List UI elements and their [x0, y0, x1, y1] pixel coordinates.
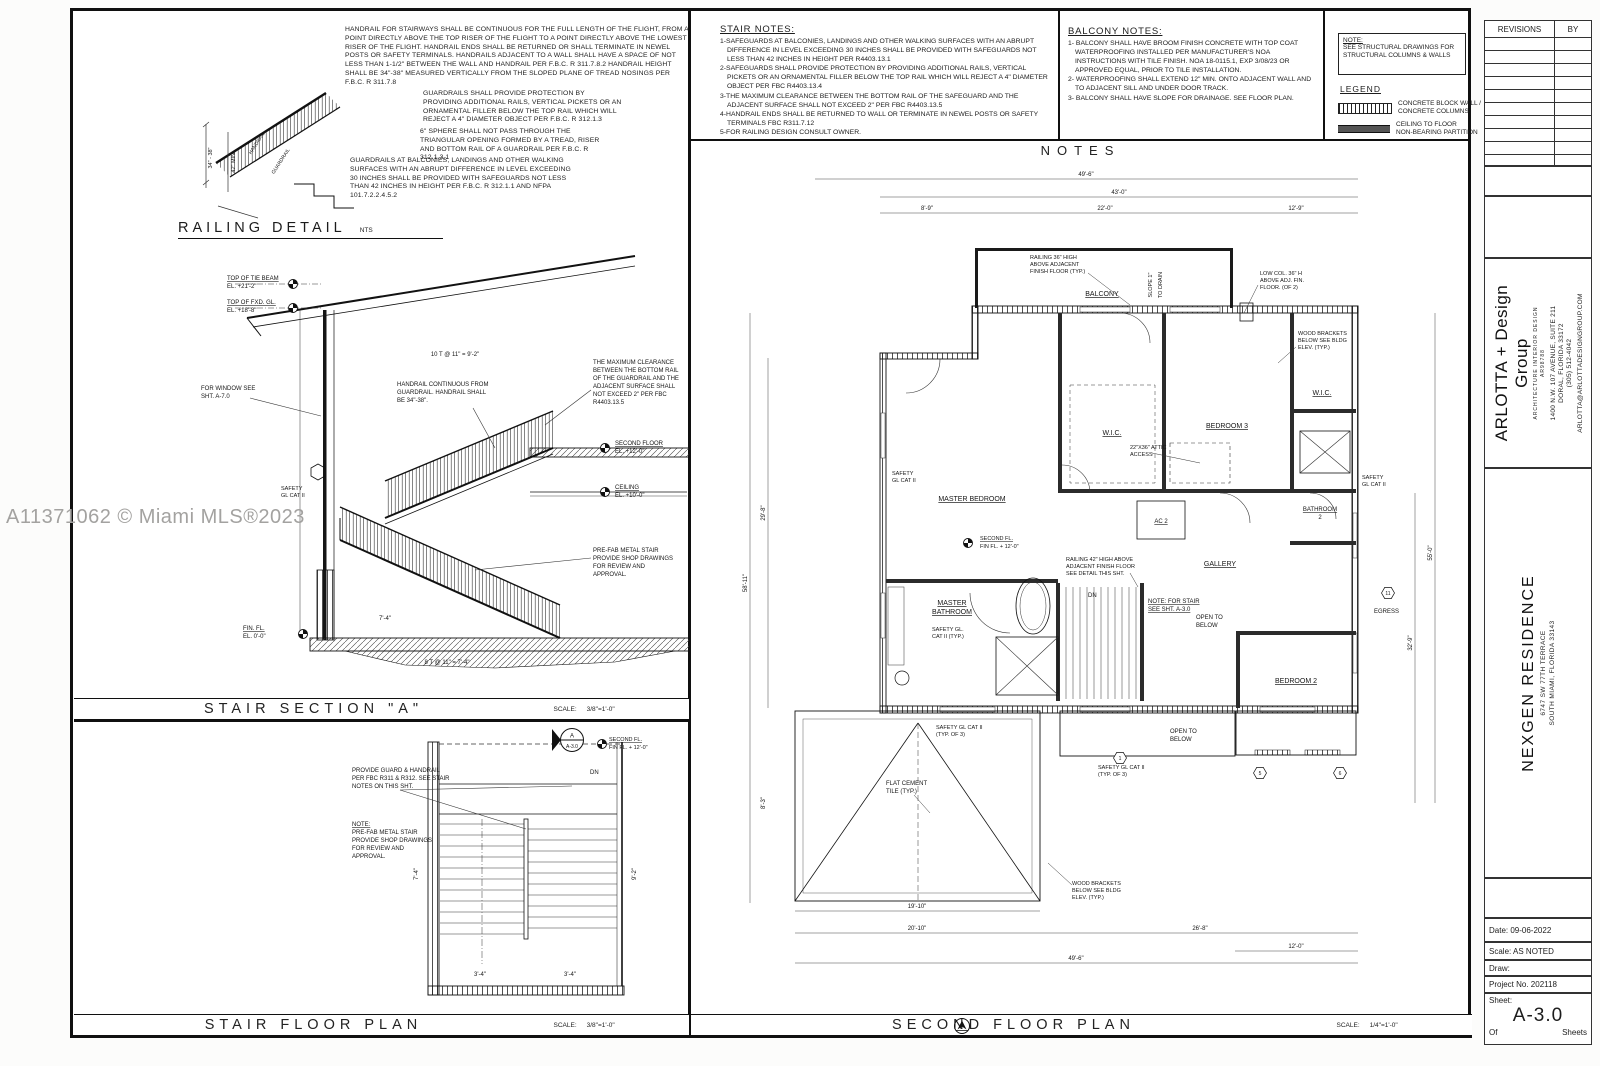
dim-right-2: 32'-9": [1408, 635, 1414, 650]
safety-typ-2: CAT II (TYP.): [932, 634, 964, 640]
railing-detail-title: RAILING DETAIL NTS: [178, 220, 443, 239]
plan-prefab-note: NOTE:: [352, 822, 371, 828]
dim-bot-4: 49'-6": [1068, 956, 1083, 962]
project-info: NEXGEN RESIDENCE 6747 SW 77TH TERRACE SO…: [1484, 468, 1592, 878]
dim-top-4: 22'-0": [1097, 206, 1112, 212]
handrail-note-1: HANDRAIL FOR STAIRWAYS SHALL BE CONTINUO…: [345, 26, 690, 88]
stair-plan-fin-fl: FIN FL. + 12'-0": [609, 745, 648, 751]
safety-typ3-b2: (TYP. OF 3): [1098, 772, 1127, 778]
firm-phone: (305) 512-4042: [1566, 339, 1573, 388]
safety-left: SAFETY: [892, 471, 914, 477]
block-wall-label-1: CONCRETE BLOCK WALL /: [1398, 100, 1481, 108]
room-gallery: GALLERY: [1204, 561, 1236, 568]
titleblock-spacer-3: [1484, 878, 1592, 918]
sheet-number: A-3.0: [1489, 1005, 1587, 1027]
wood-brackets-note-b2: BELOW SEE BLDG: [1072, 888, 1121, 894]
wood-brackets-note-b: WOOD BRACKETS: [1072, 881, 1121, 887]
railing-detail-scale: NTS: [360, 227, 373, 234]
guard-note-3: NOTES ON THIS SHT.: [352, 784, 414, 790]
draw-row: Draw:: [1484, 960, 1592, 976]
revisions-header: REVISIONS BY: [1485, 21, 1591, 38]
stair-section-scale: SCALE: 3/8"=1'-0": [554, 706, 689, 713]
room-bedroom3: BEDROOM 3: [1206, 423, 1248, 430]
stair-plan-dim-4: 9'-2": [632, 868, 638, 880]
second-floor-scale: SCALE: 1/4"=1'-0": [1337, 1022, 1472, 1029]
revision-row: [1485, 129, 1591, 142]
stair-section-title: STAIR SECTION "A": [74, 701, 554, 717]
dim-top-3: 8'-9": [921, 206, 933, 212]
firm-email: ARLOTTA@ARLOTTADESIGNGROUP.COM: [1577, 293, 1584, 432]
stair-notes-block: STAIR NOTES: 1-SAFEGUARDS AT BALCONIES, …: [720, 24, 1055, 137]
stair-note-item: 3-THE MAXIMUM CLEARANCE BETWEEN THE BOTT…: [720, 92, 1055, 110]
section-geometry: [235, 256, 689, 668]
open-to-below-2: BELOW: [1196, 623, 1218, 629]
handrail-cont-note-2: GUARDRAIL. HANDRAIL SHALL: [397, 390, 487, 396]
clearance-note: THE MAXIMUM CLEARANCE: [593, 360, 674, 366]
handrail-cont-note-3: BE 34"-38".: [397, 398, 428, 404]
fxd-gl-el: EL. +18'-8": [227, 308, 256, 314]
partition-swatch: [1338, 125, 1390, 133]
revision-row: [1485, 51, 1591, 64]
block-wall-swatch: [1338, 103, 1392, 114]
revisions-header-label: REVISIONS: [1485, 21, 1555, 37]
balcony-notes-title: BALCONY NOTES:: [1068, 26, 1314, 37]
flat-tile-note: FLAT CEMENT: [886, 781, 927, 787]
clearance-note-3: OF THE GUARDRAIL AND THE: [593, 376, 679, 382]
handrail-note-2: GUARDRAILS SHALL PROVIDE PROTECTION BY P…: [423, 90, 623, 125]
slope-note-2: TO DRAIN: [1158, 272, 1164, 298]
room-bathroom2-2: 2: [1318, 515, 1322, 521]
section-marker-sheet: A-3.0: [566, 744, 578, 750]
revision-row: [1485, 90, 1591, 103]
firm-name: ARLOTTA + Design Group: [1492, 258, 1532, 468]
project-name: NEXGEN RESIDENCE: [1520, 574, 1538, 771]
room-bathroom2: BATHROOM: [1303, 507, 1337, 513]
project-address-2: SOUTH MIAMI, FLORIDA 33143: [1549, 620, 1556, 725]
open-to-below: OPEN TO: [1196, 615, 1223, 621]
balcony-note-item: 3- BALCONY SHALL HAVE SLOPE FOR DRAINAGE…: [1068, 94, 1314, 103]
safety-right: SAFETY: [1362, 475, 1384, 481]
open-to-below-b2: BELOW: [1170, 737, 1192, 743]
room-master-bath: MASTER: [937, 600, 966, 607]
railing36-note-3: FINISH FLOOR (TYP.): [1030, 269, 1085, 275]
stair-plan-title: STAIR FLOOR PLAN: [74, 1017, 554, 1033]
firm-info: ARLOTTA + Design Group ARCHITECTURE INTE…: [1484, 258, 1592, 468]
slope-note: SLOPE 1": [1148, 273, 1154, 298]
prefab-note-2: PROVIDE SHOP DRAWINGS: [593, 556, 673, 562]
marker-11: 11: [1385, 591, 1390, 597]
stair-plan-scale: SCALE: 3/8"=1'-0": [554, 1022, 689, 1029]
firm-address-1: 1400 N.W. 107 AVENUE, SUITE 211: [1550, 306, 1557, 421]
room-bedroom2: BEDROOM 2: [1275, 678, 1317, 685]
handrail-cont-note: HANDRAIL CONTINUOUS FROM: [397, 382, 488, 388]
stair-note-item: 1-SAFEGUARDS AT BALCONIES, LANDINGS AND …: [720, 37, 1055, 64]
dim-right-1: 55'-0": [1428, 545, 1434, 560]
dim-bot-5: 12'-0": [1288, 944, 1303, 950]
guard-note: PROVIDE GUARD & HANDRAIL: [352, 768, 441, 774]
structural-note-title: NOTE:: [1343, 37, 1461, 44]
dim-bot-2: 20'-10": [908, 926, 927, 932]
railing-dim-height: 34" - 38": [208, 147, 214, 168]
room-master-bedroom: MASTER BEDROOM: [938, 496, 1005, 503]
railing36-note: RAILING 36" HIGH: [1030, 255, 1077, 261]
stair-notes-title: STAIR NOTES:: [720, 24, 1055, 35]
notes-row-divider: [690, 139, 1471, 141]
ceiling-el: EL. +10'-0": [615, 493, 644, 499]
plan-prefab-note-5: APPROVAL.: [352, 854, 386, 860]
project-no-row: Project No. 202118: [1484, 976, 1592, 993]
second-floor-label: SECOND FLOOR: [615, 441, 664, 447]
dim-bot-1: 19'-10": [908, 904, 927, 910]
room-egress: EGRESS: [1374, 609, 1399, 615]
scale-label: SCALE:: [554, 1022, 577, 1029]
tie-beam-el: EL. +21'-2": [227, 284, 256, 290]
second-floor-plan-drawing: BALCONY MASTER BEDROOM SECOND FL. FIN FL…: [700, 163, 1475, 1011]
legend-item-partition: CEILING TO FLOOR NON-BEARING PARTITION: [1338, 121, 1478, 137]
block-wall-label-2: CONCRETE COLUMNS: [1398, 108, 1481, 116]
attic-access-label: 22"X36" ATTIC: [1130, 445, 1167, 451]
stair-plan-dim-2: 3'-4": [474, 972, 486, 978]
structural-note-box: NOTE: SEE STRUCTURAL DRAWINGS FOR STRUCT…: [1338, 33, 1466, 75]
legend-item-block-wall: CONCRETE BLOCK WALL / CONCRETE COLUMNS: [1338, 100, 1481, 116]
revision-row: [1485, 142, 1591, 155]
sheet-of: Of: [1489, 1028, 1497, 1037]
railing-detail-title-text: RAILING DETAIL: [178, 220, 346, 236]
safety-typ: SAFETY GL.: [932, 627, 964, 633]
scale-value: 1/4"=1'-0": [1370, 1022, 1398, 1029]
stair-balcony-divider: [1058, 8, 1060, 140]
safety-typ3: SAFETY GL CAT II: [936, 725, 983, 731]
attic-access-label-2: ACCESS: [1130, 452, 1153, 458]
stair-plan-dim-3: 3'-4": [564, 972, 576, 978]
section-marker-letter: A: [570, 734, 574, 740]
plan-prefab-note-4: FOR REVIEW AND: [352, 846, 405, 852]
north-arrow-icon: [953, 1017, 971, 1035]
railing42-note: RAILING 42" HIGH ABOVE: [1066, 557, 1133, 563]
partition-label: CEILING TO FLOOR NON-BEARING PARTITION: [1396, 121, 1478, 137]
stair-ref-note-2: SEE SHT. A-3.0: [1148, 607, 1191, 613]
prefab-note-3: FOR REVIEW AND: [593, 564, 646, 570]
clearance-note-4: ADJACENT SURFACE SHALL: [593, 384, 676, 390]
revision-row: [1485, 116, 1591, 129]
architectural-sheet: { "watermark": "A11371062 © Miami MLS®20…: [0, 0, 1600, 1066]
fxd-gl-label: TOP OF FXD. GL.: [227, 300, 276, 306]
sheet-box: Sheet: A-3.0 Of Sheets: [1484, 993, 1592, 1045]
lowcol-note: LOW COL. 36" H: [1260, 271, 1302, 277]
block-wall-label: CONCRETE BLOCK WALL / CONCRETE COLUMNS: [1398, 100, 1481, 116]
plan-prefab-note-2: PRE-FAB METAL STAIR: [352, 830, 418, 836]
safety-right-2: GL CAT II: [1362, 482, 1386, 488]
second-floor-el: EL. +12'-0": [615, 449, 644, 455]
structural-note-body: SEE STRUCTURAL DRAWINGS FOR STRUCTURAL C…: [1343, 44, 1461, 61]
scale-value: 3/8"=1'-0": [587, 706, 615, 713]
railing-dim-min: 42" MIN.: [231, 151, 237, 173]
safety-typ3-b: SAFETY GL CAT II: [1098, 765, 1145, 771]
project-address-1: 6747 SW 77TH TERRACE: [1540, 630, 1547, 715]
firm-tagline: ARCHITECTURE INTERIOR DESIGN: [1533, 307, 1539, 420]
legend-title: LEGEND: [1340, 84, 1381, 94]
dim-top-1: 49'-6": [1078, 172, 1093, 178]
notes-heading: NOTES: [690, 143, 1471, 158]
stair-note-item: 5-FOR RAILING DESIGN CONSULT OWNER.: [720, 128, 1055, 137]
revision-row: [1485, 77, 1591, 90]
open-to-below-b: OPEN TO: [1170, 729, 1197, 735]
guardrail-label: GUARDRAIL: [271, 147, 292, 175]
fin-fl-label: FIN. FL.: [243, 626, 265, 632]
lowcol-note-2: ABOVE ADJ. FIN.: [1260, 278, 1304, 284]
fin-fl-el: EL. 0'-0": [243, 634, 266, 640]
tie-beam-label: TOP OF TIE BEAM: [227, 276, 279, 282]
window-note: FOR WINDOW SEE: [201, 386, 255, 392]
marker-5: 5: [1259, 771, 1262, 777]
plan-second-fl: SECOND FL.: [980, 536, 1013, 542]
railing42-note-2: ADJACENT FINISH FLOOR: [1066, 564, 1135, 570]
scale-label: SCALE:: [554, 706, 577, 713]
balcony-legend-divider: [1323, 8, 1325, 140]
prefab-note-4: APPROVAL.: [593, 572, 627, 578]
railing36-note-2: ABOVE ADJACENT: [1030, 262, 1080, 268]
elev-fin-fl: FIN. FL. EL. 0'-0": [243, 626, 308, 640]
dim-top-2: 43'-0": [1111, 190, 1126, 196]
railing42-note-3: SEE DETAIL THIS SHT.: [1066, 571, 1125, 577]
by-header-label: BY: [1555, 25, 1591, 34]
elev-tie-beam: TOP OF TIE BEAM EL. +21'-2": [227, 276, 298, 290]
date-row: Date: 09-06-2022: [1484, 918, 1592, 942]
stair-plan-titlebar: STAIR FLOOR PLAN SCALE: 3/8"=1'-0": [74, 1014, 689, 1038]
section-cut-marker: A A-3.0: [552, 729, 584, 752]
mls-watermark: A11371062 © Miami MLS®2023: [6, 506, 305, 529]
section-dim-bottom: 8 T @ 11" = 7'-4": [424, 660, 469, 666]
room-ac2: AC 2: [1154, 519, 1168, 525]
sheet-sheets: Sheets: [1562, 1028, 1587, 1037]
sheet-label: Sheet:: [1489, 996, 1587, 1005]
titleblock-spacer-1: [1484, 166, 1592, 196]
railing-geometry: [203, 93, 354, 218]
plan-dn: DN: [1088, 593, 1097, 599]
room-balcony: BALCONY: [1085, 291, 1119, 298]
section-dim-run: 7'-4": [379, 616, 391, 622]
dim-left-3: 8'-3": [761, 797, 767, 809]
balcony-note-item: 2- WATERPROOFING SHALL EXTEND 12" MIN. O…: [1068, 75, 1314, 93]
section-dim-top: 10 T @ 11" = 9'-2": [431, 352, 479, 358]
prefab-note: PRE-FAB METAL STAIR: [593, 548, 659, 554]
marker-1: 1: [1119, 756, 1122, 762]
dim-bot-3: 26'-8": [1192, 926, 1207, 932]
wood-brackets-note-b3: ELEV. (TYP.): [1072, 895, 1104, 901]
scale-row: Scale: AS NOTED: [1484, 942, 1592, 960]
window-note-2: SHT. A-7.0: [201, 394, 230, 400]
handrail-note-4: GUARDRAILS AT BALCONIES, LANDINGS AND OT…: [350, 157, 580, 201]
ceiling-label: CEILING: [615, 485, 639, 491]
stair-floor-plan-drawing: A A-3.0 SECOND FL. FIN FL. + 12'-0" DN P…: [340, 724, 690, 1012]
partition-label-1: CEILING TO FLOOR: [1396, 121, 1478, 129]
stair-section-titlebar: STAIR SECTION "A" SCALE: 3/8"=1'-0": [74, 698, 689, 722]
balcony-notes-block: BALCONY NOTES: 1- BALCONY SHALL HAVE BRO…: [1068, 26, 1314, 103]
stair-plan-dim-1: 7'-4": [414, 868, 420, 880]
plan-prefab-note-3: PROVIDE SHOP DRAWINGS: [352, 838, 432, 844]
safety-typ3-2: (TYP. OF 3): [936, 732, 965, 738]
safety-left-2: GL CAT II: [892, 478, 916, 484]
stair-note-item: 2-SAFEGUARDS SHALL PROVIDE PROTECTION BY…: [720, 64, 1055, 91]
second-floor-titlebar: SECOND FLOOR PLAN SCALE: 1/4"=1'-0": [691, 1014, 1472, 1038]
stair-plan-dn: DN: [590, 770, 599, 776]
flat-tile-note-2: TILE (TYP.): [886, 789, 917, 795]
clearance-note-5: NOT EXCEED 2" PER FBC: [593, 392, 667, 398]
dim-top-5: 12'-9": [1288, 206, 1303, 212]
room-master-bath-2: BATHROOM: [932, 609, 972, 616]
guard-note-2: PER FBC R311 & R312. SEE STAIR: [352, 776, 450, 782]
scale-value: 3/8"=1'-0": [587, 1022, 615, 1029]
revisions-table: REVISIONS BY: [1484, 20, 1592, 166]
stair-plan-second-fl: SECOND FL.: [609, 737, 642, 743]
revision-row: [1485, 103, 1591, 116]
safety-glass-label: SAFETY: [281, 486, 303, 492]
wood-brackets-note: WOOD BRACKETS: [1298, 331, 1347, 337]
balcony-note-item: 1- BALCONY SHALL HAVE BROOM FINISH CONCR…: [1068, 39, 1314, 75]
room-wic-1: W.I.C.: [1102, 430, 1121, 437]
second-floor-title: SECOND FLOOR PLAN: [691, 1017, 1337, 1033]
partition-label-2: NON-BEARING PARTITION: [1396, 129, 1478, 137]
clearance-note-2: BETWEEN THE BOTTOM RAIL: [593, 368, 679, 374]
dim-left-1: 58'-11": [743, 574, 749, 592]
stair-note-item: 4-HANDRAIL ENDS SHALL BE RETURNED TO WAL…: [720, 110, 1055, 128]
railing-detail-drawing: 34" - 38" 42" MIN. HANDRAIL GUARDRAIL: [198, 66, 368, 224]
sheet-of-row: Of Sheets: [1489, 1028, 1587, 1037]
titleblock-spacer-2: [1484, 196, 1592, 258]
scale-label: SCALE:: [1337, 1022, 1360, 1029]
lowcol-note-3: FLOOR. (OF 2): [1260, 285, 1298, 291]
marker-6: 6: [1339, 771, 1342, 777]
wood-brackets-note-3: ELEV. (TYP.): [1298, 345, 1330, 351]
revision-row: [1485, 38, 1591, 51]
room-wic-2: W.I.C.: [1312, 390, 1331, 397]
firm-license: AR98788: [1540, 349, 1546, 377]
plan-fin-fl: FIN FL. + 12'-0": [980, 544, 1019, 550]
clearance-note-6: R4403.13.5: [593, 400, 625, 406]
wood-brackets-note-2: BELOW SEE BLDG: [1298, 338, 1347, 344]
stair-section-drawing: TOP OF TIE BEAM EL. +21'-2" TOP OF FXD. …: [75, 240, 689, 692]
dim-left-2: 29'-8": [761, 505, 767, 520]
firm-address-2: DORAL, FLORIDA 33172: [1558, 323, 1565, 403]
safety-glass-label-2: GL CAT II: [281, 493, 305, 499]
revision-row: [1485, 64, 1591, 77]
plan-elev-marker: SECOND FL. FIN FL. + 12'-0": [964, 536, 1019, 550]
stair-ref-note: NOTE: FOR STAIR: [1148, 599, 1200, 605]
